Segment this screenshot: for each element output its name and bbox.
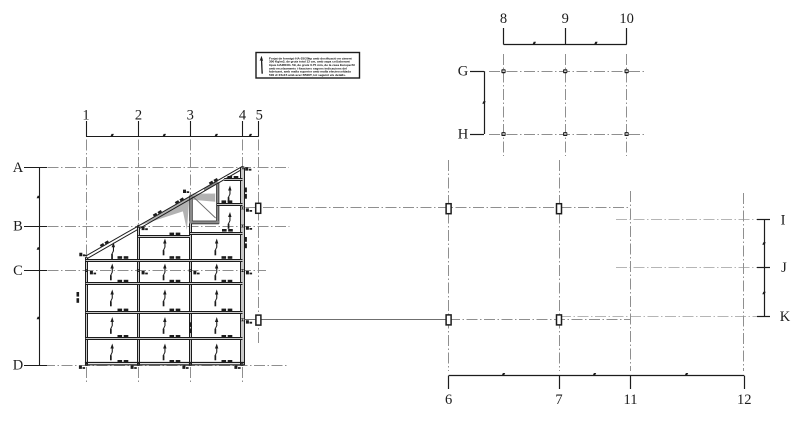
svg-text:G: G bbox=[458, 64, 469, 80]
svg-text:J: J bbox=[781, 260, 787, 276]
svg-text:7: 7 bbox=[555, 392, 562, 408]
svg-text:12: 12 bbox=[737, 392, 752, 408]
svg-text:H: H bbox=[458, 127, 469, 143]
svg-text:3: 3 bbox=[187, 108, 194, 124]
svg-text:9: 9 bbox=[562, 11, 569, 27]
svg-text:11: 11 bbox=[624, 392, 638, 408]
svg-text:500 d=15x15 amb acer B500T, to: 500 d=15x15 amb acer B500T, tot seguint … bbox=[269, 73, 346, 77]
svg-text:6: 6 bbox=[445, 392, 452, 408]
svg-text:B: B bbox=[13, 219, 23, 235]
svg-text:A: A bbox=[13, 160, 24, 176]
svg-text:I: I bbox=[781, 212, 786, 228]
svg-text:1: 1 bbox=[82, 108, 89, 124]
svg-text:10: 10 bbox=[619, 11, 634, 27]
svg-text:K: K bbox=[780, 309, 791, 325]
svg-text:5: 5 bbox=[256, 108, 263, 124]
svg-text:D: D bbox=[13, 358, 23, 374]
svg-text:8: 8 bbox=[500, 11, 507, 27]
svg-text:4: 4 bbox=[239, 108, 247, 124]
svg-text:C: C bbox=[13, 263, 23, 279]
svg-text:2: 2 bbox=[135, 108, 142, 124]
